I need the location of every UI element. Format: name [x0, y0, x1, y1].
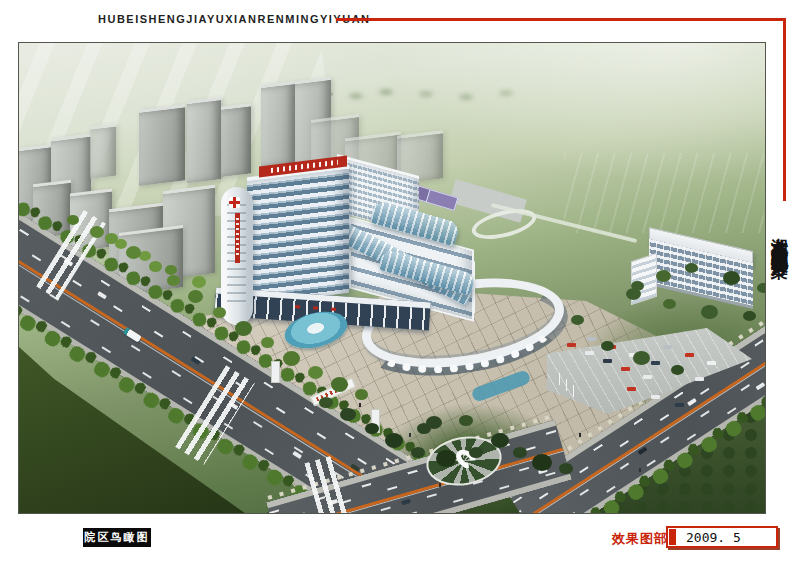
header-rule-vertical: [783, 18, 786, 201]
main-inpatient-tower: [247, 165, 349, 306]
bus: [123, 327, 142, 342]
trees-garden: [417, 423, 431, 434]
pedestrians: [319, 373, 321, 377]
city-tower: [261, 81, 295, 167]
caption-badge: 院区鸟瞰图: [83, 528, 151, 547]
city-tower: [187, 97, 221, 183]
header-title: HUBEISHENGJIAYUXIANRENMINGYIYUAN: [98, 13, 371, 25]
red-cross-icon: [229, 197, 240, 208]
trees-campus-west: [167, 275, 180, 286]
city-tower: [139, 104, 185, 186]
door-signs: [295, 305, 300, 308]
header-rule-horizontal: [336, 18, 786, 21]
flag-poles: [559, 373, 560, 385]
rendering-viewport: [18, 42, 766, 514]
lawn-texture: [564, 153, 764, 233]
office-front-face: [631, 253, 657, 305]
city-tower: [221, 103, 251, 177]
gate-pylon: [271, 361, 280, 383]
date-text: 2009. 5: [686, 530, 741, 545]
presentation-board: { "header": { "title_roman": "HUBEISHENG…: [0, 0, 800, 565]
date-box-red-bar: [669, 529, 676, 545]
trees-roadside: [139, 251, 151, 261]
city-tower: [90, 123, 116, 178]
trees-east: [631, 281, 644, 291]
date-box: 2009. 5: [666, 526, 778, 548]
parked-cars: [567, 343, 576, 347]
gate-pylon: [371, 409, 380, 433]
vertical-name-sign: [235, 213, 240, 263]
side-title-vertical: 湖北省嘉鱼县人民医院规划设计方案: [762, 224, 796, 522]
